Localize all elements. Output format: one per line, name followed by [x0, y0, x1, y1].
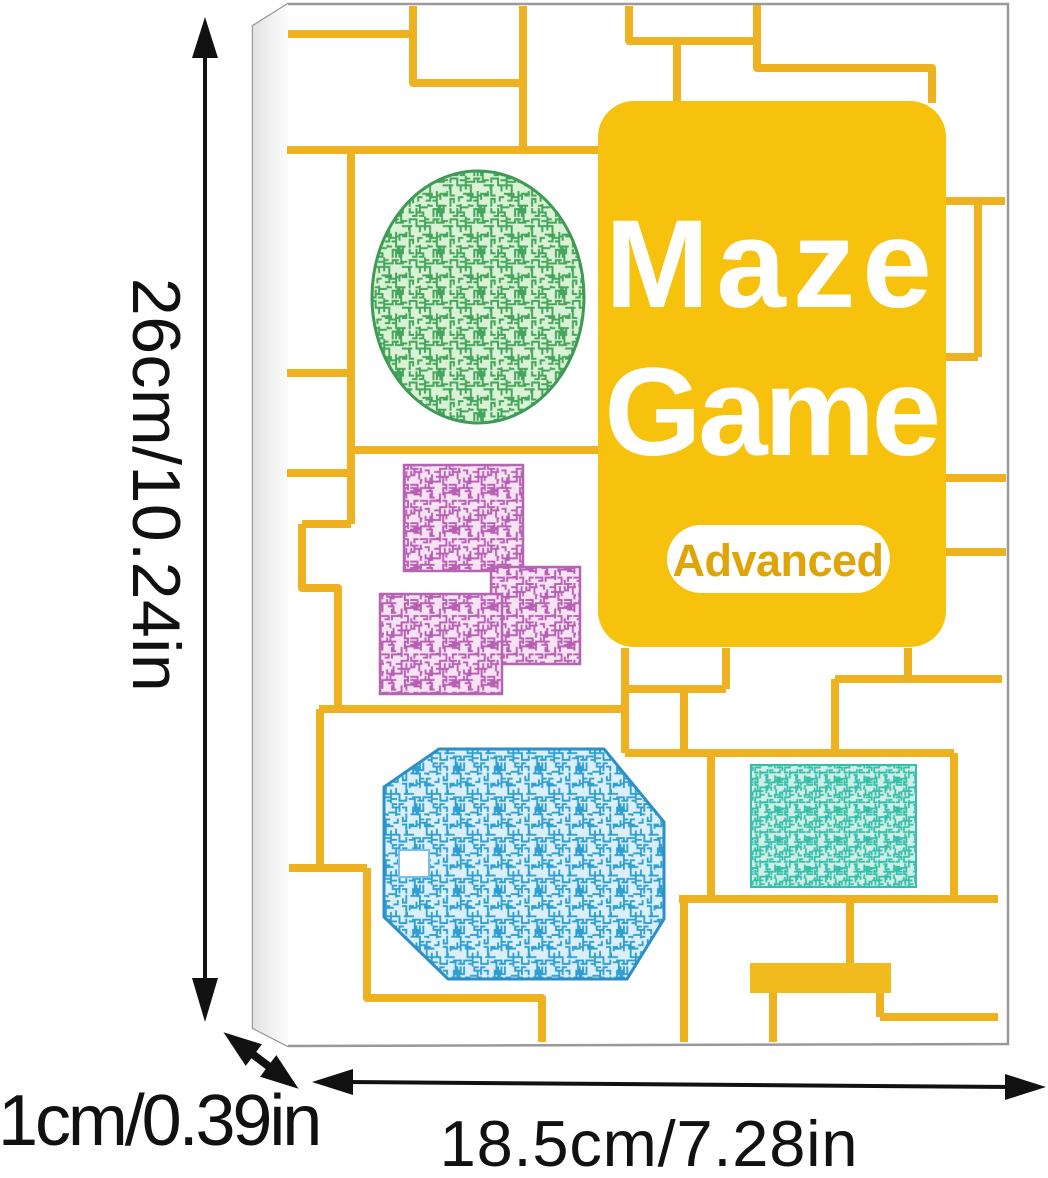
svg-text:26cm/10.24in: 26cm/10.24in: [118, 278, 194, 692]
svg-text:18.5cm/7.28in: 18.5cm/7.28in: [440, 1107, 859, 1173]
svg-text:1cm/0.39in: 1cm/0.39in: [0, 1081, 319, 1161]
svg-text:Maze: Maze: [605, 195, 939, 334]
svg-text:Advanced: Advanced: [672, 535, 883, 586]
svg-text:Game: Game: [604, 343, 937, 482]
